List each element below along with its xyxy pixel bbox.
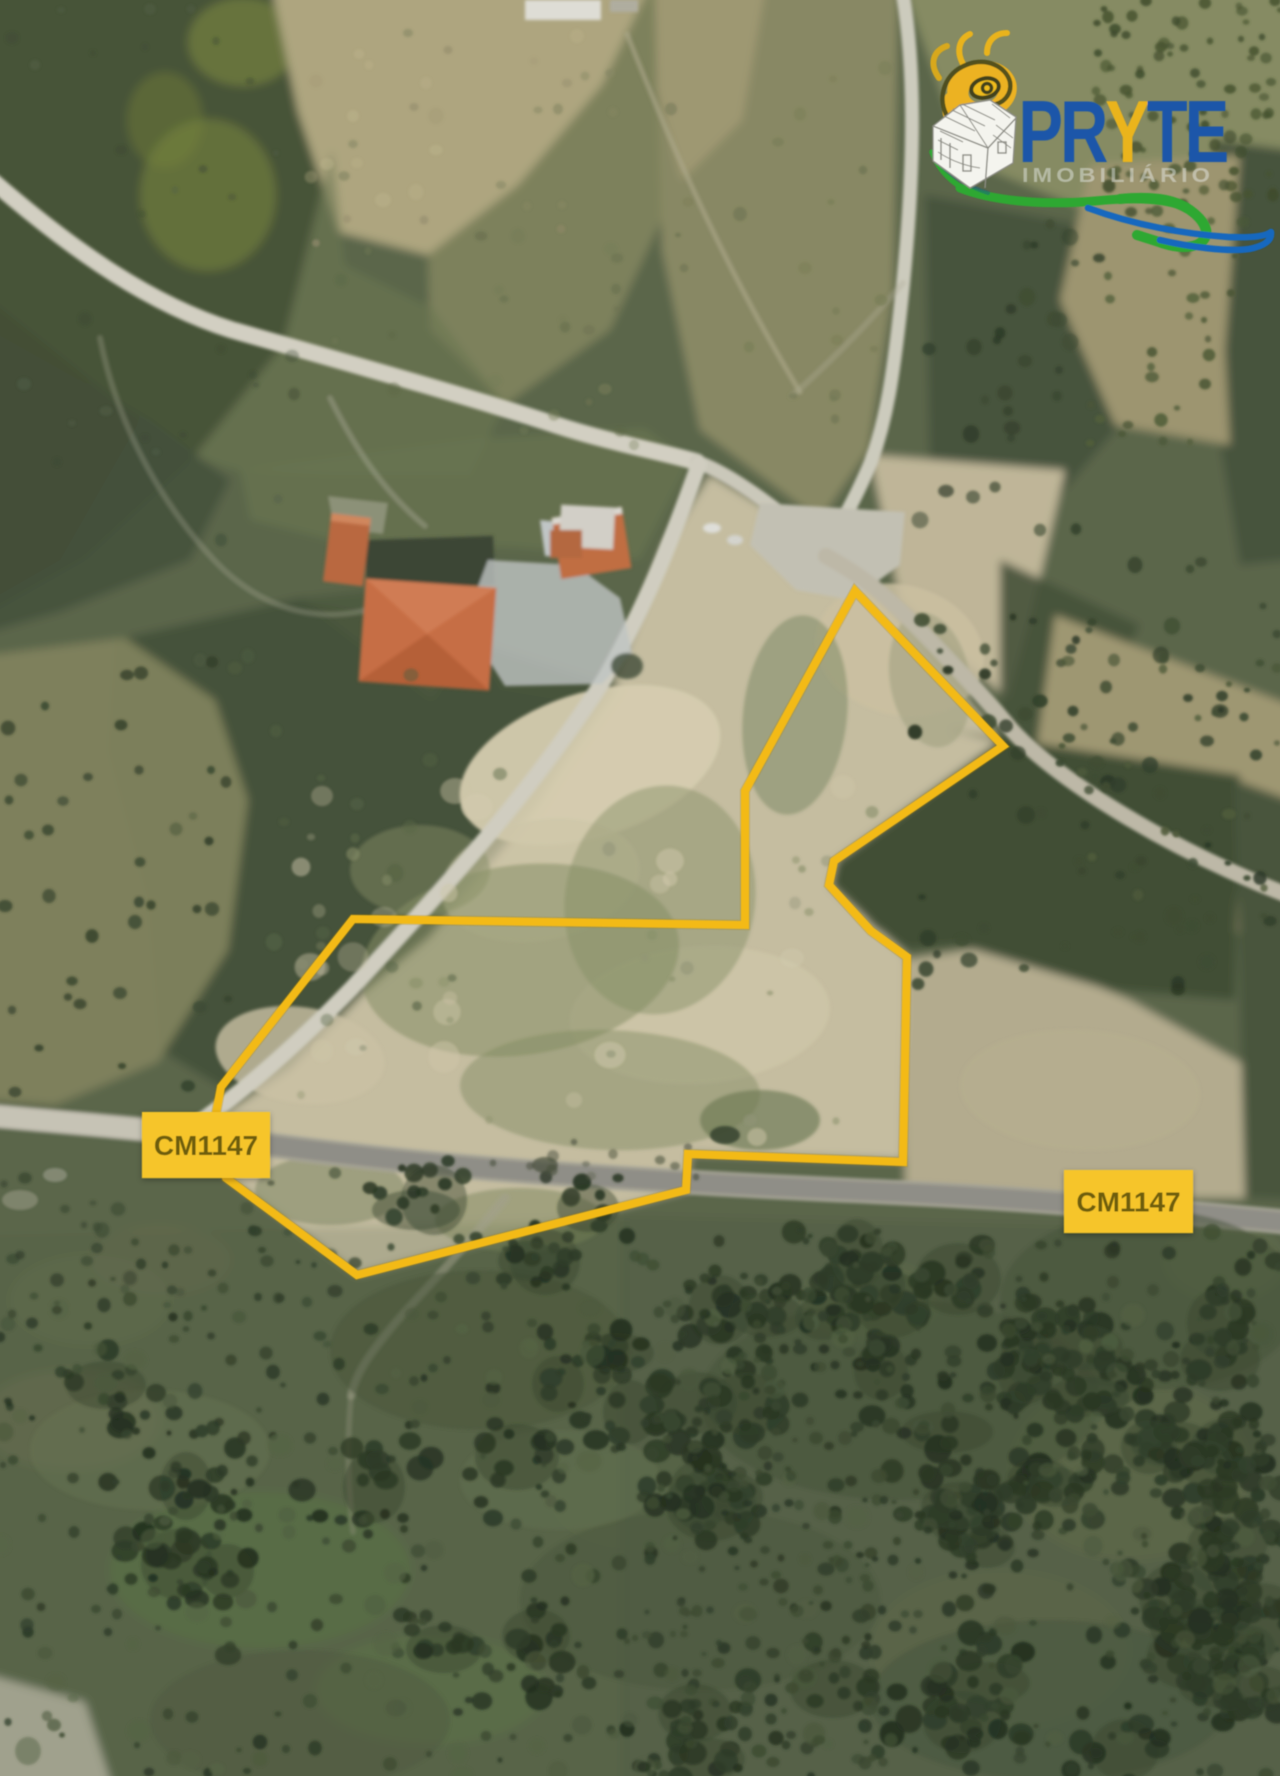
svg-text:CM1147: CM1147: [154, 1130, 258, 1161]
svg-text:CM1147: CM1147: [1076, 1187, 1180, 1218]
svg-text:IMOBILIÁRIO: IMOBILIÁRIO: [1022, 164, 1214, 187]
